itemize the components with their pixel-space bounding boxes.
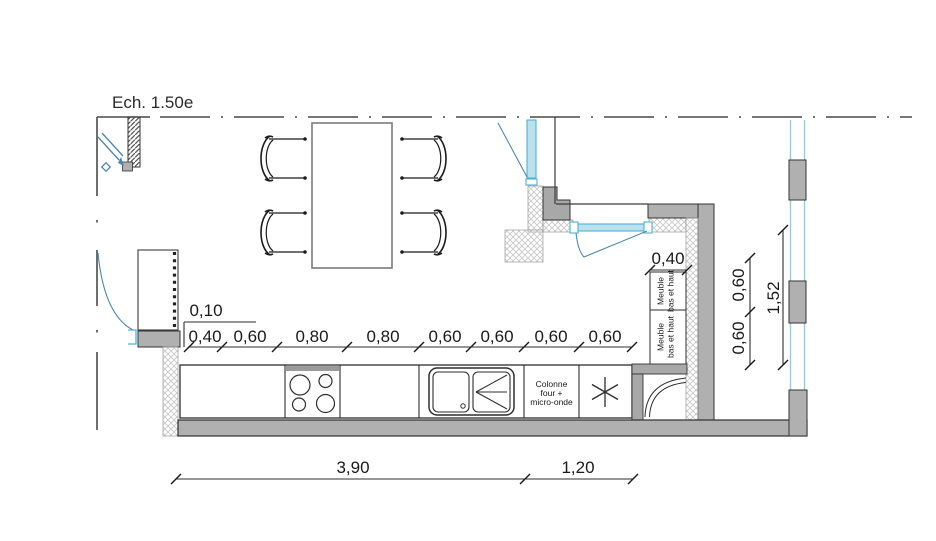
glazed-door-top (498, 120, 537, 185)
door-stop (526, 179, 537, 185)
dimension-label: 0,60 (588, 327, 621, 346)
entrance-wall-hatched (128, 117, 140, 167)
tall-cabinet (138, 250, 178, 330)
cabinet-label: bas et haut (666, 315, 676, 358)
dimension-label: 0,10 (189, 301, 222, 320)
dimension-label: 0,60 (480, 327, 513, 346)
door-hinge (570, 222, 578, 233)
dimension-label: 3,90 (336, 458, 369, 477)
burner (293, 398, 306, 411)
wall-corner (789, 390, 807, 436)
wall-segment (698, 204, 714, 436)
chair (261, 210, 307, 255)
bottom-dimensions: 3,90 1,20 (171, 458, 638, 484)
dimension-label: 0,60 (233, 327, 266, 346)
bottom-wall (178, 420, 807, 436)
dimension-label: 0,60 (729, 321, 748, 354)
door-swing-arc (98, 253, 133, 330)
floor-plan-canvas: Ech. 1.50e (0, 0, 936, 541)
floor-plan-drawing: Ech. 1.50e (0, 0, 936, 541)
burner (290, 375, 310, 395)
dimension-label: 0,40 (651, 249, 684, 268)
right-window (789, 120, 807, 436)
corner-cabinet-line (650, 383, 687, 418)
dining-table (312, 123, 392, 268)
corner-wall (632, 364, 687, 374)
burner (319, 375, 332, 388)
cabinet-label: Meuble (656, 323, 666, 351)
dimension-label: 0,80 (295, 327, 328, 346)
door-stop (128, 330, 136, 344)
right-dimensions: 0,60 0,60 1,52 (729, 225, 788, 370)
corner-wall (632, 374, 643, 420)
right-cabinet-column: Meuble bas et haut Meuble bas et haut (632, 269, 687, 420)
left-door-and-tall-unit (98, 250, 180, 347)
entrance-door-arrow (98, 133, 124, 171)
cabinet-label: bas et haut (666, 269, 676, 312)
counter-outline (180, 365, 632, 418)
dimension-label: 0,60 (428, 327, 461, 346)
oven-column-label: micro-onde (530, 397, 573, 407)
cabinet-label: Meuble (656, 277, 666, 305)
entrance-wall-block (123, 162, 133, 171)
dimension-label: 0,80 (366, 327, 399, 346)
scale-label: Ech. 1.50e (112, 93, 193, 112)
dimension-label: 1,20 (561, 458, 594, 477)
diamond-icon (102, 163, 110, 171)
dimension-label: 0,60 (534, 327, 567, 346)
dimension-label: 0,60 (729, 268, 748, 301)
chair (261, 136, 307, 181)
insulation-strip (686, 218, 698, 420)
chair (400, 136, 446, 181)
wall-pier (789, 160, 806, 200)
door-swing-line (576, 231, 647, 257)
dimension-label: 1,52 (764, 281, 783, 314)
counter-dimensions: 0,10 0,40 0,60 0,80 0,80 0,60 0,60 0,60 … (184, 301, 637, 352)
arrowhead-icon (118, 157, 124, 166)
wall-pier (789, 281, 806, 323)
insulation-strip (163, 347, 178, 436)
burner (317, 395, 335, 413)
wall-stub (138, 331, 180, 347)
glazed-door-horizontal (570, 222, 652, 257)
door-swing-line (498, 123, 527, 177)
chair (400, 210, 446, 255)
